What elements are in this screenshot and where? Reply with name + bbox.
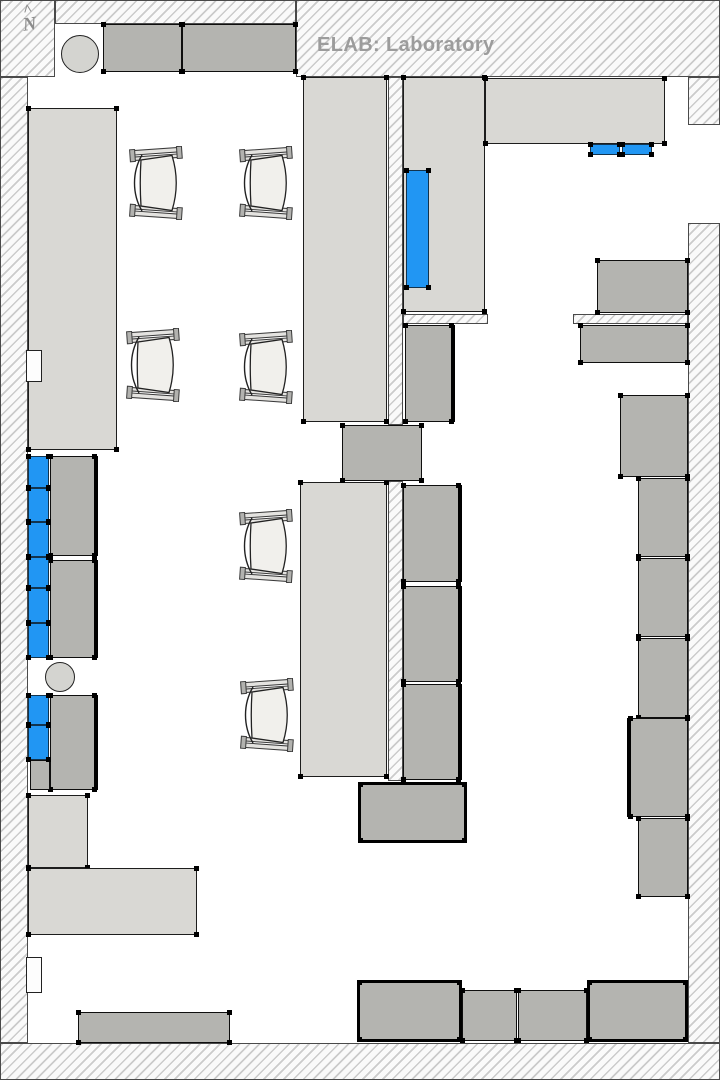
corner-tick bbox=[595, 310, 600, 315]
cabinet-left-3-ext bbox=[30, 760, 50, 790]
corner-tick bbox=[301, 419, 306, 424]
wall-bottom bbox=[0, 1043, 720, 1080]
corner-tick bbox=[460, 1038, 465, 1043]
highlighted-cabinet-left-6[interactable] bbox=[28, 623, 49, 658]
corner-tick bbox=[298, 480, 303, 485]
wall-east bbox=[688, 223, 720, 1043]
floorplan-canvas: ELAB: Laboratory ^ N bbox=[0, 0, 720, 1080]
corner-tick bbox=[587, 1037, 592, 1042]
corner-tick bbox=[636, 636, 641, 641]
corner-tick bbox=[26, 106, 31, 111]
equipment-east-1 bbox=[597, 260, 688, 313]
equipment-midright-lower bbox=[405, 325, 455, 422]
north-arrow-label: N bbox=[16, 14, 44, 35]
wall-recess-lower bbox=[26, 957, 42, 993]
corner-tick bbox=[26, 454, 31, 459]
corner-tick bbox=[683, 1037, 688, 1042]
corner-tick bbox=[456, 584, 461, 589]
corner-tick bbox=[685, 556, 690, 561]
counter-bottomleft-horizontal bbox=[28, 868, 197, 935]
equipment-bottom-1 bbox=[357, 980, 462, 1042]
equipment-center-passage bbox=[342, 425, 422, 481]
wall-mid-vertical-upper bbox=[388, 77, 403, 425]
equipment-center-col-2 bbox=[403, 586, 462, 682]
chair-icon bbox=[125, 328, 181, 402]
corner-tick bbox=[194, 932, 199, 937]
corner-tick bbox=[685, 258, 690, 263]
cabinet-left-2 bbox=[50, 560, 98, 658]
corner-tick bbox=[685, 894, 690, 899]
corner-tick bbox=[358, 782, 363, 787]
corner-tick bbox=[419, 478, 424, 483]
corner-tick bbox=[26, 555, 31, 560]
corner-tick bbox=[357, 1037, 362, 1042]
corner-tick bbox=[587, 980, 592, 985]
corner-tick bbox=[516, 988, 521, 993]
corner-tick bbox=[456, 483, 461, 488]
corner-tick bbox=[636, 816, 641, 821]
highlighted-equipment-midright[interactable] bbox=[406, 170, 429, 288]
cabinet-top-2 bbox=[182, 24, 296, 72]
corner-tick bbox=[685, 716, 690, 721]
corner-tick bbox=[92, 787, 97, 792]
chair-icon bbox=[238, 509, 294, 583]
corner-tick bbox=[457, 980, 462, 985]
corner-tick bbox=[685, 476, 690, 481]
corner-tick bbox=[180, 69, 185, 74]
wall-east-upper-tab bbox=[688, 77, 720, 125]
wall-recess-upper bbox=[26, 350, 42, 382]
corner-tick bbox=[636, 894, 641, 899]
corner-tick bbox=[516, 1038, 521, 1043]
corner-tick bbox=[384, 75, 389, 80]
chair-icon bbox=[238, 146, 294, 220]
corner-tick bbox=[649, 142, 654, 147]
wall-left bbox=[0, 77, 28, 1043]
corner-tick bbox=[301, 75, 306, 80]
corner-tick bbox=[628, 716, 633, 721]
equipment-bottom-4 bbox=[587, 980, 688, 1042]
corner-tick bbox=[358, 838, 363, 843]
equipment-center-bottom bbox=[358, 782, 467, 843]
chair-3 bbox=[125, 328, 181, 402]
corner-tick bbox=[92, 454, 97, 459]
corner-tick bbox=[460, 988, 465, 993]
corner-tick bbox=[46, 655, 51, 660]
equipment-east-4 bbox=[638, 478, 688, 557]
wall-mid-vertical-lower bbox=[388, 481, 403, 781]
chair-5 bbox=[238, 509, 294, 583]
corner-tick bbox=[588, 142, 593, 147]
corner-tick bbox=[683, 980, 688, 985]
corner-tick bbox=[618, 474, 623, 479]
corner-tick bbox=[685, 323, 690, 328]
highlighted-cabinet-left-1[interactable] bbox=[28, 456, 49, 488]
corner-tick bbox=[401, 75, 406, 80]
corner-tick bbox=[419, 423, 424, 428]
corner-tick bbox=[620, 142, 625, 147]
corner-tick bbox=[595, 258, 600, 263]
corner-tick bbox=[114, 106, 119, 111]
corner-tick bbox=[357, 980, 362, 985]
corner-tick bbox=[685, 816, 690, 821]
cabinet-left-1 bbox=[50, 456, 98, 556]
highlighted-cabinet-left-3[interactable] bbox=[28, 522, 49, 557]
chair-icon bbox=[238, 330, 294, 404]
corner-tick bbox=[426, 168, 431, 173]
corner-tick bbox=[685, 310, 690, 315]
corner-tick bbox=[227, 1040, 232, 1045]
corner-tick bbox=[26, 520, 31, 525]
equipment-east-8 bbox=[638, 818, 688, 897]
corner-tick bbox=[26, 757, 31, 762]
chair-icon bbox=[239, 678, 295, 752]
corner-tick bbox=[46, 693, 51, 698]
corner-tick bbox=[636, 476, 641, 481]
corner-tick bbox=[26, 655, 31, 660]
equipment-center-col-3 bbox=[403, 684, 462, 780]
cabinet-left-3 bbox=[50, 695, 98, 790]
stool-top-left bbox=[61, 35, 99, 73]
corner-tick bbox=[462, 838, 467, 843]
corner-tick bbox=[76, 1040, 81, 1045]
corner-tick bbox=[636, 556, 641, 561]
counter-left-upper bbox=[28, 108, 117, 450]
corner-tick bbox=[404, 168, 409, 173]
corner-tick bbox=[85, 793, 90, 798]
corner-tick bbox=[483, 76, 488, 81]
corner-tick bbox=[26, 693, 31, 698]
room-title: ELAB: Laboratory bbox=[317, 34, 495, 57]
corner-tick bbox=[46, 757, 51, 762]
corner-tick bbox=[26, 723, 31, 728]
corner-tick bbox=[685, 393, 690, 398]
equipment-east-2 bbox=[580, 325, 688, 363]
corner-tick bbox=[46, 454, 51, 459]
corner-tick bbox=[401, 309, 406, 314]
equipment-bottom-3 bbox=[518, 990, 587, 1041]
corner-tick bbox=[227, 1010, 232, 1015]
corner-tick bbox=[46, 486, 51, 491]
corner-tick bbox=[628, 814, 633, 819]
corner-tick bbox=[404, 285, 409, 290]
equipment-center-col-1 bbox=[403, 485, 462, 582]
corner-tick bbox=[401, 682, 406, 687]
counter-bottomleft-vertical bbox=[28, 795, 88, 868]
equipment-east-7 bbox=[627, 718, 688, 817]
chair-2 bbox=[238, 146, 294, 220]
corner-tick bbox=[26, 486, 31, 491]
corner-tick bbox=[26, 866, 31, 871]
chair-6 bbox=[239, 678, 295, 752]
equipment-east-3 bbox=[620, 395, 688, 477]
equipment-east-6 bbox=[638, 638, 688, 718]
corner-tick bbox=[483, 141, 488, 146]
corner-tick bbox=[76, 1010, 81, 1015]
cabinet-top-1 bbox=[103, 24, 182, 72]
corner-tick bbox=[456, 682, 461, 687]
corner-tick bbox=[685, 360, 690, 365]
highlighted-cabinet-left-2[interactable] bbox=[28, 488, 49, 522]
corner-tick bbox=[298, 774, 303, 779]
wall-stub-right bbox=[573, 314, 688, 324]
corner-tick bbox=[384, 774, 389, 779]
corner-tick bbox=[46, 555, 51, 560]
corner-tick bbox=[578, 323, 583, 328]
corner-tick bbox=[403, 419, 408, 424]
corner-tick bbox=[92, 558, 97, 563]
equipment-east-5 bbox=[638, 558, 688, 637]
corner-tick bbox=[46, 520, 51, 525]
highlighted-cabinet-left-7[interactable] bbox=[28, 695, 49, 725]
corner-tick bbox=[101, 69, 106, 74]
corner-tick bbox=[340, 478, 345, 483]
highlighted-cabinet-left-8[interactable] bbox=[28, 725, 49, 760]
stool-left-middle bbox=[45, 662, 75, 692]
chair-1 bbox=[128, 146, 184, 220]
chair-icon bbox=[128, 146, 184, 220]
corner-tick bbox=[101, 22, 106, 27]
corner-tick bbox=[588, 152, 593, 157]
corner-tick bbox=[426, 285, 431, 290]
corner-tick bbox=[340, 423, 345, 428]
chair-4 bbox=[238, 330, 294, 404]
corner-tick bbox=[194, 866, 199, 871]
corner-tick bbox=[620, 152, 625, 157]
bench-bottom-left bbox=[78, 1012, 230, 1043]
corner-tick bbox=[449, 419, 454, 424]
corner-tick bbox=[180, 22, 185, 27]
highlighted-cabinet-left-4[interactable] bbox=[28, 557, 49, 588]
wall-stub-left bbox=[403, 314, 488, 324]
corner-tick bbox=[46, 723, 51, 728]
corner-tick bbox=[449, 323, 454, 328]
corner-tick bbox=[46, 586, 51, 591]
corner-tick bbox=[462, 782, 467, 787]
equipment-bottom-2 bbox=[462, 990, 517, 1041]
corner-tick bbox=[662, 76, 667, 81]
corner-tick bbox=[92, 655, 97, 660]
corner-tick bbox=[114, 447, 119, 452]
corner-tick bbox=[662, 141, 667, 146]
corner-tick bbox=[26, 793, 31, 798]
corner-tick bbox=[401, 584, 406, 589]
corner-tick bbox=[92, 693, 97, 698]
corner-tick bbox=[578, 360, 583, 365]
bench-center-upper bbox=[303, 77, 387, 422]
corner-tick bbox=[403, 323, 408, 328]
corner-tick bbox=[649, 152, 654, 157]
corner-tick bbox=[384, 419, 389, 424]
corner-tick bbox=[26, 621, 31, 626]
bench-center-lower bbox=[300, 482, 387, 777]
corner-tick bbox=[482, 309, 487, 314]
corner-tick bbox=[293, 69, 298, 74]
corner-tick bbox=[618, 393, 623, 398]
highlighted-equipment-topright-1[interactable] bbox=[590, 144, 620, 155]
corner-tick bbox=[401, 483, 406, 488]
counter-top-right bbox=[485, 78, 665, 144]
corner-tick bbox=[46, 621, 51, 626]
corner-tick bbox=[26, 932, 31, 937]
highlighted-cabinet-left-5[interactable] bbox=[28, 588, 49, 623]
corner-tick bbox=[26, 586, 31, 591]
corner-tick bbox=[685, 636, 690, 641]
corner-tick bbox=[293, 22, 298, 27]
north-arrow-icon: ^ N bbox=[14, 4, 44, 35]
corner-tick bbox=[26, 447, 31, 452]
wall-top-strip bbox=[55, 0, 296, 24]
highlighted-equipment-topright-2[interactable] bbox=[622, 144, 652, 155]
